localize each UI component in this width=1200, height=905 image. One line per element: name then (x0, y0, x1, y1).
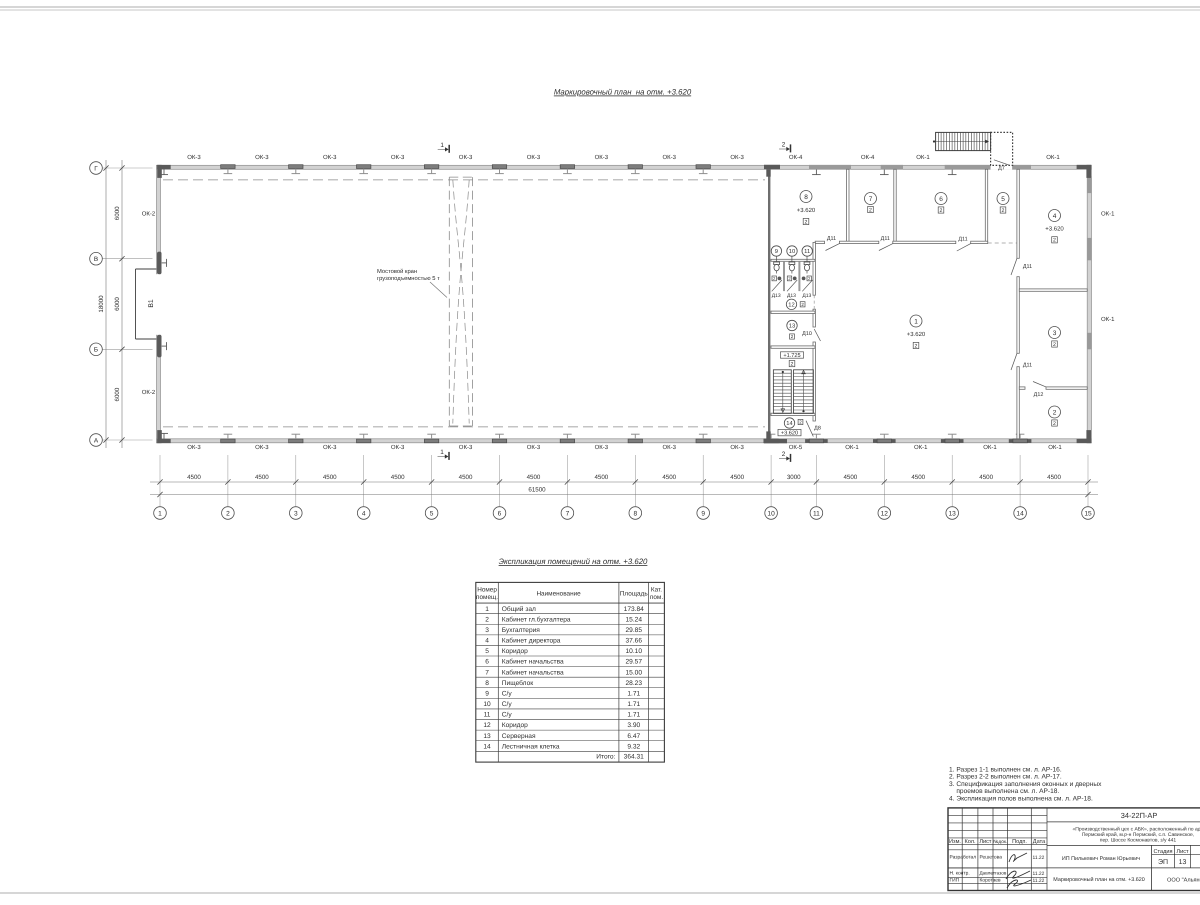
svg-text:28.23: 28.23 (625, 680, 642, 687)
svg-text:364.31: 364.31 (624, 754, 645, 761)
svg-text:Наименование: Наименование (536, 591, 581, 598)
svg-text:ОК-3: ОК-3 (663, 154, 677, 161)
svg-text:4: 4 (1053, 213, 1057, 220)
svg-text:Д10: Д10 (802, 331, 812, 337)
svg-text:11: 11 (804, 249, 810, 255)
svg-text:13: 13 (789, 323, 795, 330)
svg-text:1: 1 (158, 510, 162, 517)
svg-text:ОК-3: ОК-3 (527, 154, 541, 161)
svg-text:2: 2 (869, 207, 872, 213)
svg-text:С/у: С/у (502, 690, 513, 697)
svg-text:ЭП: ЭП (1158, 859, 1168, 866)
svg-text:ОК-5: ОК-5 (789, 444, 803, 451)
svg-text:8: 8 (804, 194, 808, 201)
svg-text:1. Разрез 1-1 выполнен см. л.: 1. Разрез 1-1 выполнен см. л. АР-16. (949, 767, 1062, 774)
svg-text:4500: 4500 (459, 474, 473, 481)
svg-text:ОК-2: ОК-2 (142, 389, 156, 396)
svg-text:6000: 6000 (114, 206, 121, 220)
svg-text:+3.620: +3.620 (797, 207, 816, 214)
svg-text:Б: Б (94, 347, 98, 354)
svg-text:Д7: Д7 (998, 165, 1005, 171)
svg-text:1.71: 1.71 (627, 690, 640, 697)
svg-text:2. Разрез 2-2 выполнен см. л.: 2. Разрез 2-2 выполнен см. л. АР-17. (949, 774, 1062, 781)
svg-text:2: 2 (1053, 409, 1057, 416)
svg-text:+3.620: +3.620 (781, 431, 798, 437)
svg-text:1: 1 (914, 318, 918, 325)
svg-text:Общий зал: Общий зал (502, 606, 536, 613)
svg-text:Д11: Д11 (1023, 264, 1032, 270)
svg-text:В1: В1 (148, 299, 155, 308)
svg-text:ОК-3: ОК-3 (323, 154, 337, 161)
svg-text:Д12: Д12 (1034, 392, 1044, 398)
svg-text:15.00: 15.00 (625, 669, 642, 676)
svg-text:1: 1 (440, 449, 444, 456)
svg-text:5: 5 (1001, 196, 1005, 203)
svg-text:4500: 4500 (527, 474, 541, 481)
svg-text:ОК-3: ОК-3 (730, 444, 744, 451)
svg-text:Бухгалтерия: Бухгалтерия (502, 627, 541, 634)
svg-text:ОК-1: ОК-1 (1048, 444, 1062, 451)
svg-text:Кабинет директора: Кабинет директора (502, 638, 561, 645)
svg-text:34-22П-АР: 34-22П-АР (1121, 811, 1158, 820)
svg-text:15: 15 (1084, 510, 1092, 517)
svg-text:ОК-3: ОК-3 (595, 154, 609, 161)
svg-text:7: 7 (869, 196, 873, 203)
svg-text:Д11: Д11 (881, 236, 890, 242)
svg-text:Площадь: Площадь (620, 591, 648, 598)
svg-text:29.57: 29.57 (625, 659, 642, 666)
svg-text:61500: 61500 (528, 487, 546, 494)
svg-text:Кол.: Кол. (964, 839, 976, 845)
svg-text:29.85: 29.85 (625, 627, 642, 634)
svg-text:4500: 4500 (911, 474, 925, 481)
svg-text:3000: 3000 (787, 474, 801, 481)
svg-text:8: 8 (633, 510, 637, 517)
svg-text:2: 2 (782, 141, 786, 148)
svg-text:ГИП: ГИП (950, 878, 960, 884)
svg-text:Д13: Д13 (802, 293, 811, 299)
svg-text:4500: 4500 (662, 474, 676, 481)
svg-text:+3.620: +3.620 (1045, 226, 1064, 233)
svg-text:ОК-3: ОК-3 (459, 444, 473, 451)
svg-text:Д13: Д13 (772, 293, 781, 299)
svg-text:9: 9 (701, 510, 705, 517)
svg-text:ОК-3: ОК-3 (187, 154, 201, 161)
svg-text:пом.: пом. (650, 594, 663, 601)
svg-text:15.24: 15.24 (625, 616, 642, 623)
svg-text:+3.620: +3.620 (907, 331, 926, 338)
svg-text:7: 7 (485, 669, 489, 676)
svg-text:Коридор: Коридор (502, 648, 528, 655)
svg-text:Номер: Номер (477, 587, 497, 594)
svg-text:4: 4 (485, 638, 489, 645)
svg-text:Стадия: Стадия (1153, 849, 1172, 855)
svg-text:Давлетгазов: Давлетгазов (980, 871, 1007, 876)
svg-text:ОК-3: ОК-3 (391, 154, 405, 161)
svg-text:4500: 4500 (255, 474, 269, 481)
svg-text:4500: 4500 (594, 474, 608, 481)
svg-text:пер. Шоссе Космонавтов, з/у 44: пер. Шоссе Космонавтов, з/у 441 (1100, 838, 1177, 844)
svg-text:2: 2 (226, 510, 230, 517)
svg-text:6: 6 (485, 659, 489, 666)
svg-text:ОК-2: ОК-2 (142, 210, 156, 217)
svg-text:ОК-3: ОК-3 (391, 444, 405, 451)
svg-text:ОК-4: ОК-4 (789, 154, 803, 161)
svg-text:ОК-3: ОК-3 (255, 154, 269, 161)
svg-text:4. Экспликация полов выполнен: 4. Экспликация полов выполнена см. л. АР… (949, 795, 1093, 802)
svg-text:2: 2 (782, 451, 786, 458)
svg-text:4500: 4500 (979, 474, 993, 481)
svg-text:8: 8 (485, 680, 489, 687)
svg-text:14: 14 (786, 421, 793, 427)
svg-text:3.90: 3.90 (627, 722, 640, 729)
svg-text:ОК-3: ОК-3 (255, 444, 269, 451)
svg-text:2: 2 (915, 343, 918, 349)
svg-text:№док.: №док. (993, 839, 1007, 845)
svg-text:Разработал: Разработал (950, 854, 977, 860)
svg-text:Г: Г (94, 165, 98, 172)
svg-text:11: 11 (484, 712, 491, 719)
svg-text:10: 10 (789, 248, 795, 255)
svg-text:ОК-1: ОК-1 (983, 444, 997, 451)
svg-text:11.22: 11.22 (1033, 855, 1045, 861)
svg-text:Кабинет начальства: Кабинет начальства (502, 669, 564, 676)
svg-text:11.22: 11.22 (1033, 878, 1045, 884)
svg-text:3: 3 (485, 627, 489, 634)
svg-text:+1.725: +1.725 (783, 353, 800, 359)
svg-text:Подп.: Подп. (1012, 839, 1027, 845)
svg-text:13: 13 (1179, 859, 1187, 866)
svg-text:1.71: 1.71 (627, 701, 640, 708)
svg-text:проемов выполнена см. л. АР-18: проемов выполнена см. л. АР-18. (949, 788, 1059, 795)
svg-text:Д11: Д11 (827, 236, 836, 242)
svg-text:ОК-4: ОК-4 (861, 154, 875, 161)
svg-text:Мостовой кран: Мостовой кран (377, 268, 417, 275)
svg-text:18000: 18000 (98, 295, 105, 313)
svg-text:ОК-3: ОК-3 (595, 444, 609, 451)
svg-text:Коротаев: Коротаев (980, 878, 1002, 884)
svg-text:А: А (94, 437, 99, 444)
svg-text:ОК-3: ОК-3 (323, 444, 337, 451)
svg-text:ООО "Альянс": ООО "Альянс" (1167, 877, 1200, 883)
svg-text:2: 2 (1053, 238, 1056, 244)
svg-text:11.22: 11.22 (1033, 871, 1045, 877)
svg-text:ОК-3: ОК-3 (527, 444, 541, 451)
svg-text:4500: 4500 (1047, 474, 1061, 481)
svg-text:13: 13 (483, 733, 491, 740)
svg-text:ОК-1: ОК-1 (1101, 210, 1115, 217)
svg-text:Лист: Лист (979, 839, 992, 845)
svg-text:Решетова: Решетова (980, 854, 1003, 860)
svg-text:6: 6 (498, 510, 502, 517)
svg-text:ОК-1: ОК-1 (914, 444, 928, 451)
svg-text:11: 11 (813, 510, 820, 517)
svg-text:С/у: С/у (502, 701, 513, 708)
svg-text:ОК-1: ОК-1 (1101, 316, 1115, 323)
svg-text:Серверная: Серверная (502, 733, 536, 740)
svg-text:ОК-1: ОК-1 (845, 444, 859, 451)
svg-text:12: 12 (788, 301, 794, 308)
svg-text:помещ.: помещ. (476, 594, 498, 601)
svg-text:Экспликация помещений на отм.: Экспликация помещений на отм. +3.620 (499, 557, 648, 566)
svg-text:2: 2 (1053, 421, 1056, 427)
svg-text:грузоподъемностью 5 т: грузоподъемностью 5 т (377, 276, 440, 282)
svg-text:ОК-1: ОК-1 (1046, 154, 1060, 161)
svg-text:37.66: 37.66 (625, 638, 642, 645)
svg-text:6000: 6000 (114, 387, 121, 401)
svg-text:Кабинет гл.бухгалтера: Кабинет гл.бухгалтера (502, 616, 571, 623)
svg-text:Кабинет начальства: Кабинет начальства (502, 659, 564, 666)
svg-text:173.84: 173.84 (624, 606, 645, 613)
svg-text:2: 2 (940, 208, 943, 214)
svg-text:4: 4 (362, 510, 366, 517)
svg-text:5: 5 (430, 510, 434, 517)
svg-text:ИП Пилькевич Роман Юрьевич: ИП Пилькевич Роман Юрьевич (1062, 856, 1140, 862)
svg-text:1: 1 (440, 142, 444, 149)
svg-text:ОК-3: ОК-3 (187, 444, 201, 451)
svg-text:10: 10 (767, 510, 775, 517)
svg-text:ОК-3: ОК-3 (459, 154, 473, 161)
svg-text:1.71: 1.71 (627, 712, 640, 719)
svg-text:ОК-3: ОК-3 (730, 154, 744, 161)
svg-text:Коридор: Коридор (502, 722, 528, 729)
svg-text:В: В (94, 256, 98, 263)
svg-text:10: 10 (483, 701, 491, 708)
svg-text:Д13: Д13 (787, 293, 796, 299)
svg-text:2: 2 (805, 219, 808, 225)
svg-text:Маркировочный план на отм. +3: Маркировочный план на отм. +3.620 (554, 88, 692, 97)
svg-text:9: 9 (775, 248, 778, 255)
svg-text:4500: 4500 (843, 474, 857, 481)
svg-text:Д11: Д11 (958, 237, 967, 243)
svg-text:4500: 4500 (187, 474, 201, 481)
svg-text:14: 14 (483, 743, 491, 750)
svg-text:2: 2 (1002, 208, 1005, 214)
svg-text:ОК-1: ОК-1 (916, 154, 930, 161)
svg-text:Кат.: Кат. (651, 587, 662, 594)
svg-text:14: 14 (1016, 510, 1024, 517)
svg-text:5: 5 (485, 648, 489, 655)
svg-text:6.47: 6.47 (627, 733, 640, 740)
svg-text:12: 12 (483, 722, 491, 729)
svg-text:3: 3 (1053, 330, 1057, 337)
svg-text:2: 2 (791, 361, 794, 367)
svg-text:Лист: Лист (1176, 849, 1189, 855)
svg-text:2: 2 (1053, 342, 1056, 348)
svg-text:С/у: С/у (502, 712, 513, 719)
svg-text:Изм.: Изм. (949, 839, 961, 845)
svg-text:Пищеблок: Пищеблок (502, 680, 533, 687)
svg-text:4500: 4500 (391, 474, 405, 481)
svg-text:Д11: Д11 (1023, 363, 1032, 369)
svg-text:Маркировочный план на отм. +3.: Маркировочный план на отм. +3.620 (1053, 877, 1144, 883)
svg-text:6: 6 (939, 196, 943, 203)
svg-text:9.32: 9.32 (627, 743, 640, 750)
svg-text:Дата: Дата (1033, 839, 1046, 845)
svg-text:Д8: Д8 (814, 426, 821, 432)
svg-text:2: 2 (485, 616, 489, 623)
svg-text:Лестничная клетка: Лестничная клетка (502, 743, 560, 750)
svg-text:7: 7 (566, 510, 570, 517)
svg-text:4500: 4500 (323, 474, 337, 481)
svg-text:Итого:: Итого: (596, 754, 615, 761)
svg-text:10.10: 10.10 (625, 648, 642, 655)
svg-text:9: 9 (485, 690, 489, 697)
svg-text:13: 13 (949, 510, 957, 517)
svg-text:6000: 6000 (114, 297, 121, 311)
svg-text:1: 1 (485, 606, 489, 613)
svg-text:Н. контр.: Н. контр. (950, 871, 970, 877)
svg-text:12: 12 (881, 510, 889, 517)
svg-text:ОК-3: ОК-3 (663, 444, 677, 451)
svg-text:3. Спецификация заполнения ок: 3. Спецификация заполнения оконных и две… (949, 781, 1102, 788)
svg-text:4500: 4500 (730, 474, 744, 481)
svg-text:3: 3 (294, 510, 298, 517)
